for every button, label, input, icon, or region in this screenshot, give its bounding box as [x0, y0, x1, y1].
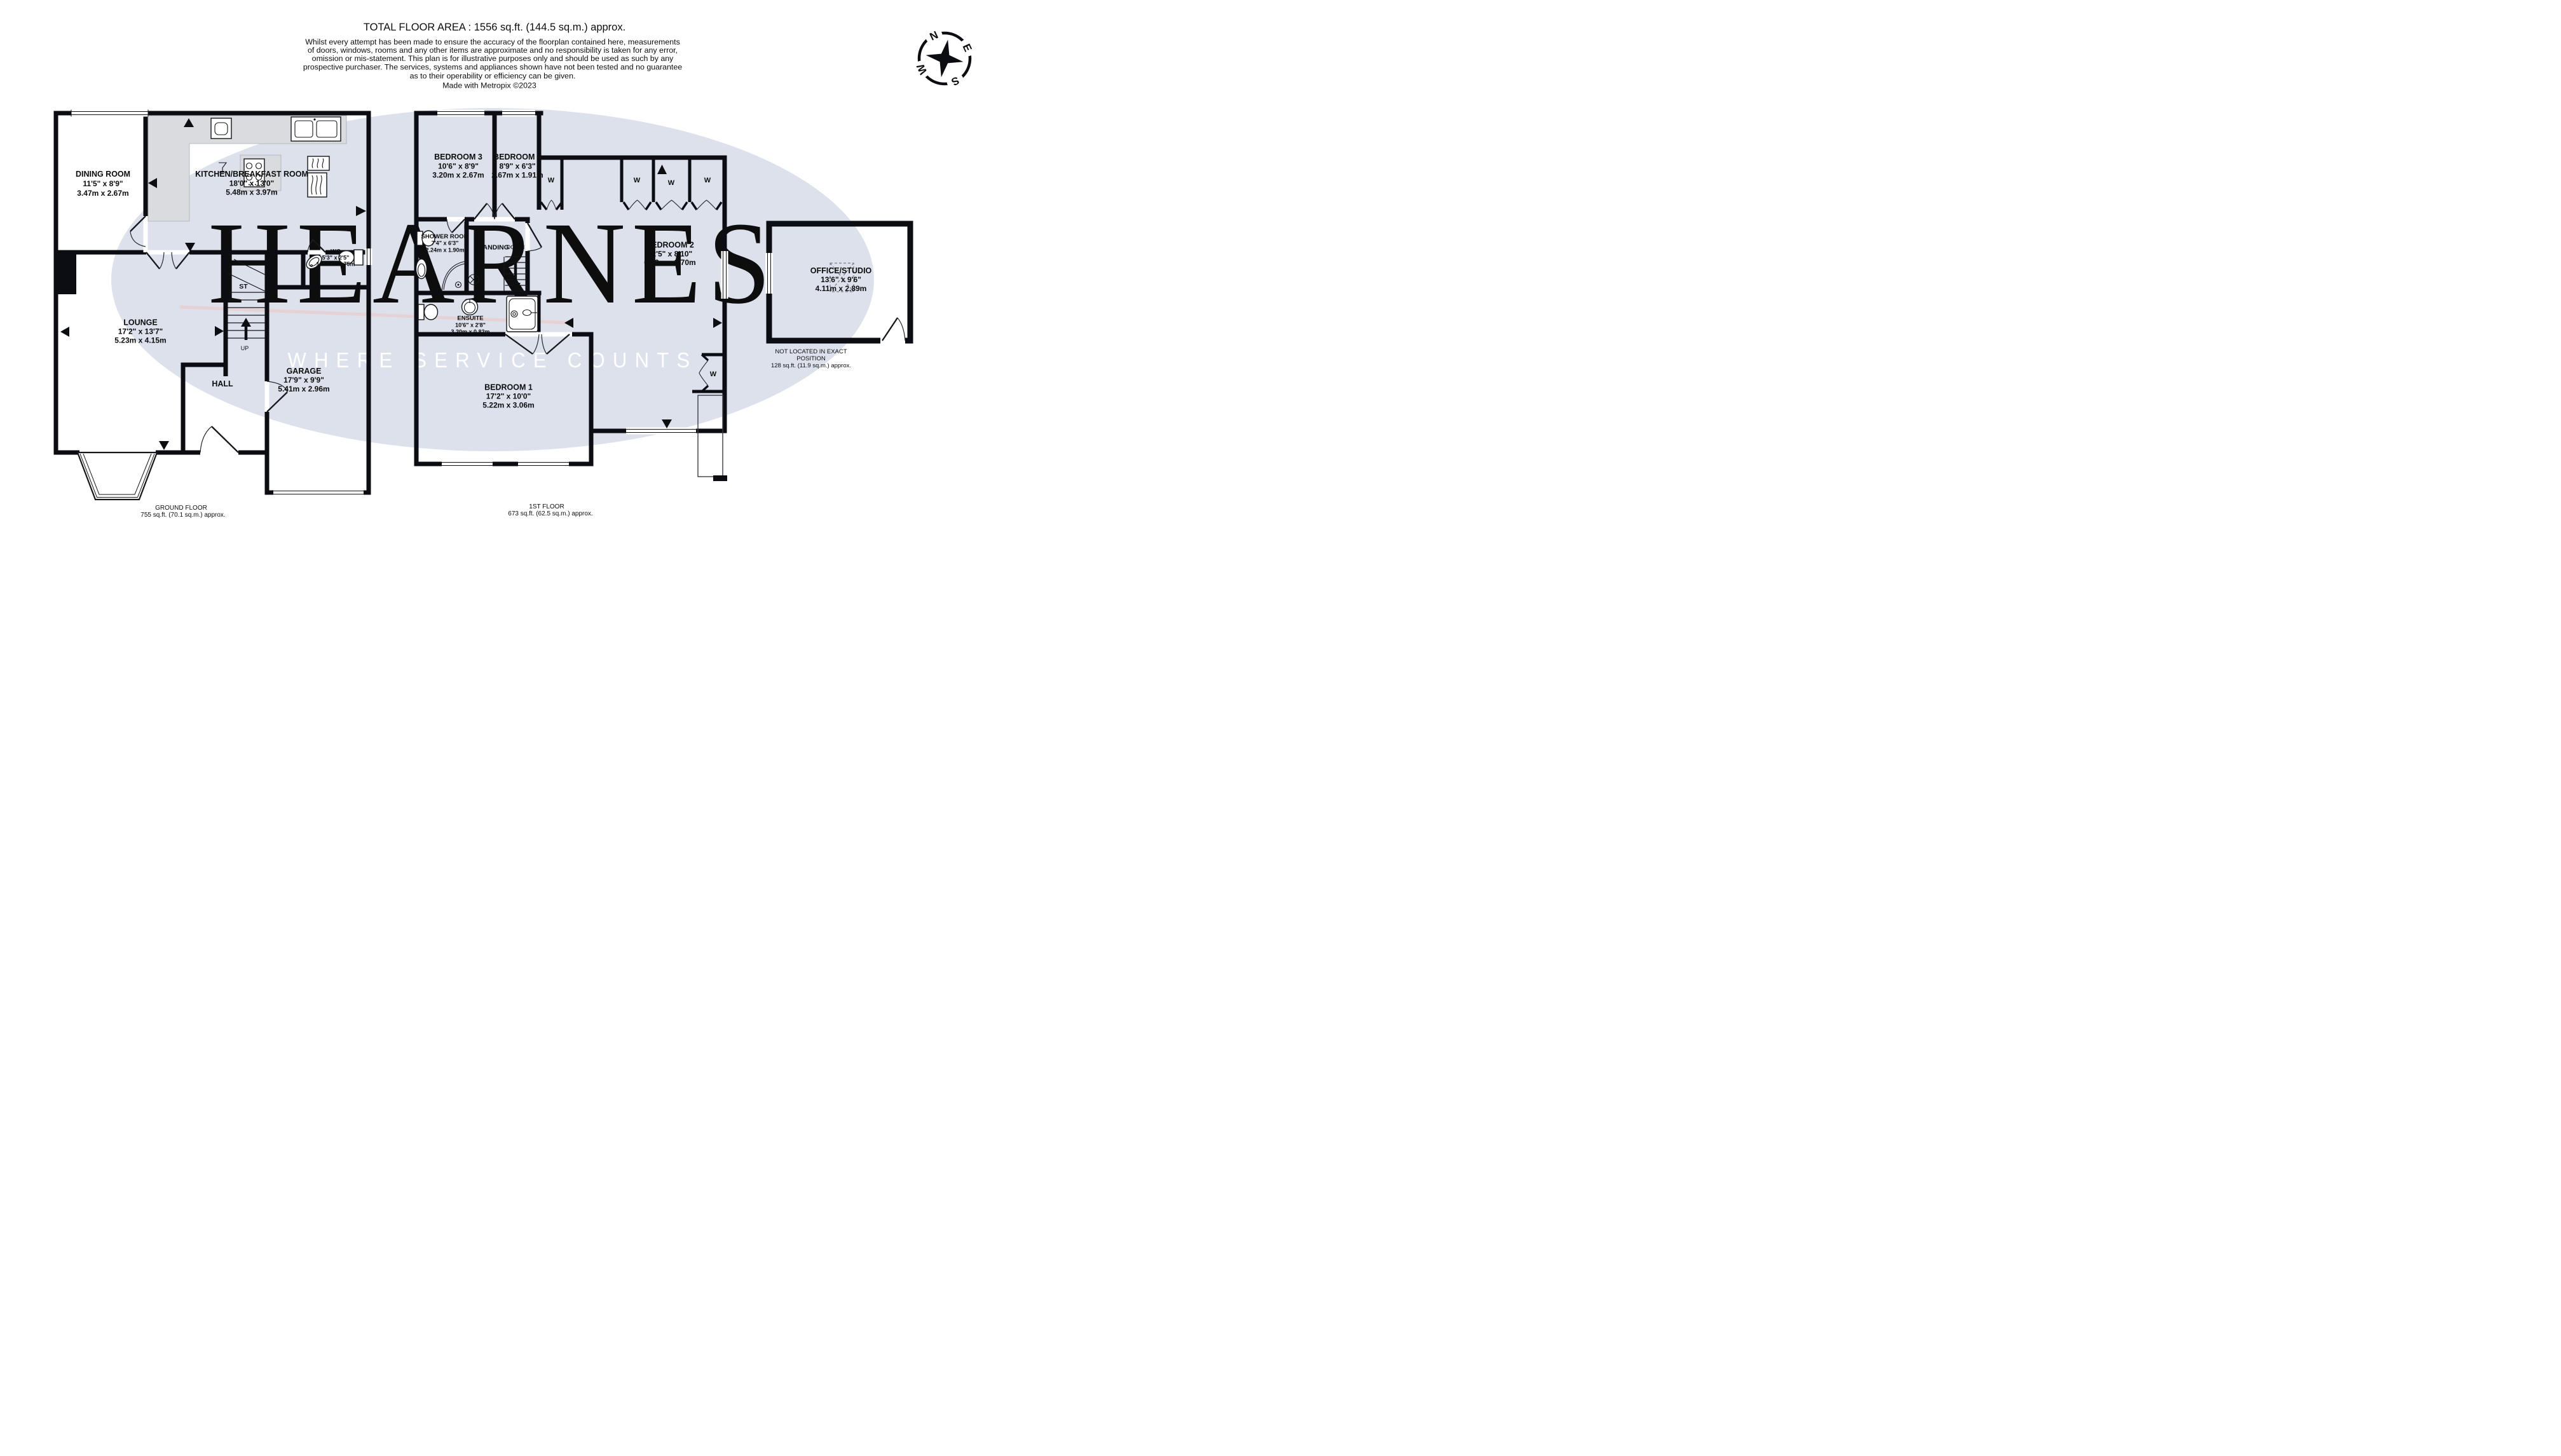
disclaimer-line-3: omission or mis-statement. This plan is …: [312, 54, 674, 63]
shower-room-metric: 2.24m x 1.90m: [425, 247, 464, 254]
wardrobe-label-4: W: [704, 177, 711, 184]
bedroom3-metric: 3.20m x 2.67m: [432, 171, 484, 180]
shower-basin-icon: [416, 259, 427, 279]
ensuite-basin-icon: [462, 299, 478, 315]
ground-floor-label: GROUND FLOOR: [155, 505, 207, 512]
double-sink-icon: [291, 117, 341, 141]
bedroom2-imperial: 22'5" x 8'10": [648, 250, 692, 259]
garage-metric: 5.41m x 2.96m: [278, 384, 329, 393]
down-label: DOWN: [507, 244, 525, 250]
compass-star: [926, 40, 964, 78]
wardrobe-label-3: W: [668, 179, 675, 187]
ensuite-metric: 3.20m x 0.82m: [451, 329, 489, 335]
shower-room-imperial: 7'4" x 6'3": [432, 240, 459, 247]
hall-label: HALL: [212, 379, 233, 388]
kitchen-metric: 5.48m x 3.97m: [226, 188, 277, 197]
storage-label: ST: [239, 283, 248, 290]
office-note-line-2: POSITION: [796, 355, 826, 362]
front-door: [200, 426, 238, 452]
office-label: OFFICE/STUDIO: [810, 266, 872, 275]
dining-room-imperial: 11'5" x 8'9": [83, 179, 123, 188]
wc-imperial: 5'3" x 2'5": [322, 255, 350, 261]
kitchen-label: KITCHEN/BREAKFAST ROOM: [195, 170, 308, 179]
office-note-line-1: NOT LOCATED IN EXACT: [775, 348, 847, 355]
bedroom1-label: BEDROOM 1: [484, 383, 533, 392]
wardrobe-label-1: W: [548, 177, 555, 184]
ensuite-label: ENSUITE: [457, 315, 483, 322]
lounge-metric: 5.23m x 4.15m: [114, 336, 166, 345]
first-floor-label: 1ST FLOOR: [529, 503, 564, 510]
kitchen-imperial: 18'0" x 13'0": [229, 179, 274, 188]
floorplan-svg: HEARNES WHERE SERVICE COUNTS TOTAL FLOOR…: [0, 0, 989, 562]
header: TOTAL FLOOR AREA : 1556 sq.ft. (144.5 sq…: [303, 22, 682, 90]
shower-room-label: SHOWER ROOM: [421, 233, 469, 240]
sink-icon: [211, 118, 231, 139]
ground-floor-area: 755 sq.ft. (70.1 sq.m.) approx.: [140, 512, 225, 519]
bay-window-icon: [78, 452, 157, 500]
wardrobe-label-2: W: [634, 177, 641, 184]
footer-labels: GROUND FLOOR 755 sq.ft. (70.1 sq.m.) app…: [140, 503, 592, 519]
disclaimer-line-4: prospective purchaser. The services, sys…: [303, 63, 682, 72]
landing-label: LANDING: [479, 244, 509, 252]
disclaimer-line-1: Whilst every attempt has been made to en…: [305, 37, 680, 46]
wardrobe-label-5: W: [710, 371, 717, 378]
ensuite-imperial: 10'6" x 2'8": [455, 322, 486, 329]
garage-imperial: 17'9" x 9'9": [283, 376, 324, 384]
arrow-down-hall: [159, 441, 169, 450]
floorplan-page: HEARNES WHERE SERVICE COUNTS TOTAL FLOOR…: [0, 0, 989, 562]
disclaimer-line-2: of doors, windows, rooms and any other i…: [308, 46, 678, 55]
bedroom1-metric: 5.22m x 3.06m: [482, 401, 534, 410]
bedroom4-label: BEDROOM 4: [493, 153, 542, 161]
bedroom4-metric: 2.67m x 1.91m: [491, 171, 543, 180]
chimney-breast: [55, 254, 76, 294]
bedroom3-label: BEDROOM 3: [434, 153, 482, 161]
bedroom3-imperial: 10'6" x 8'9": [438, 162, 479, 171]
total-floor-area-title: TOTAL FLOOR AREA : 1556 sq.ft. (144.5 sq…: [364, 22, 625, 33]
lounge-label: LOUNGE: [123, 318, 157, 327]
metropix-credit: Made with Metropix ©2023: [442, 81, 536, 90]
bedroom1-imperial: 17'2" x 10'0": [486, 392, 531, 401]
wc-metric: 1.60m x 0.75m: [316, 261, 355, 268]
bedroom2-metric: 6.83m x 2.70m: [644, 258, 695, 267]
dining-room-metric: 3.47m x 2.67m: [77, 189, 128, 198]
ensuite-toilet-icon: [418, 304, 438, 320]
compass-icon: N E S W: [913, 27, 976, 90]
arrow-left-lounge: [60, 327, 69, 337]
first-floor-area: 673 sq.ft. (62.5 sq.m.) approx.: [508, 510, 592, 517]
garage-label: GARAGE: [287, 367, 322, 376]
lounge-imperial: 17'2" x 13'7": [118, 327, 163, 336]
ensuite-shower-icon: [507, 296, 538, 332]
bedroom4-imperial: 8'9" x 6'3": [499, 162, 535, 171]
office-metric: 4.11m x 2.89m: [816, 284, 867, 293]
up-label: UP: [241, 345, 249, 351]
office-note-line-3: 128 sq.ft. (11.9 sq.m.) approx.: [771, 362, 851, 369]
appliance-stack-icon: [308, 156, 329, 197]
watermark-tagline-text: WHERE SERVICE COUNTS: [288, 348, 698, 372]
dining-room-label: DINING ROOM: [76, 170, 130, 179]
office-imperial: 13'6" x 9'6": [821, 275, 861, 284]
bedroom2-label: BEDROOM 2: [646, 241, 694, 250]
disclaimer-line-5: as to their operability or efficiency ca…: [410, 72, 576, 81]
